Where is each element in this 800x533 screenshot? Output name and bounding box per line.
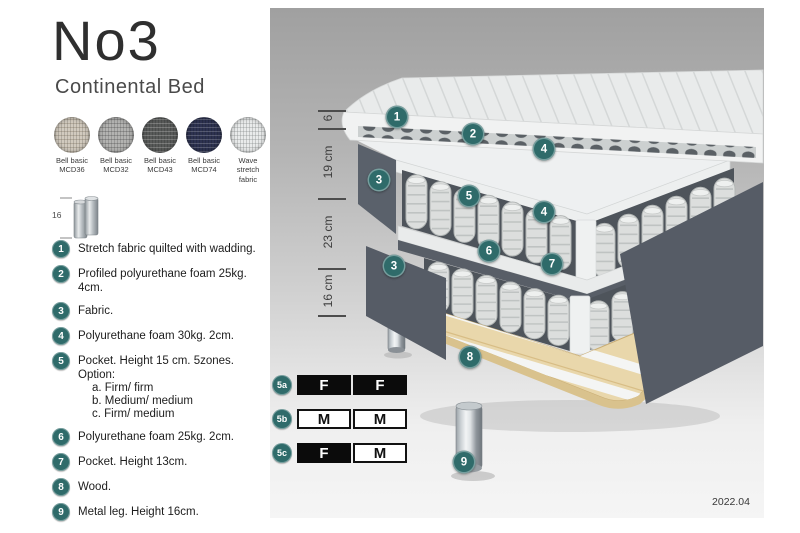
firmness-row: 5aFF: [272, 375, 407, 395]
firmness-cell: M: [297, 409, 351, 429]
spec-item: 2Profiled polyurethane foam 25kg. 4cm.: [52, 265, 274, 295]
spec-item: 4Polyurethane foam 30kg. 2cm.: [52, 327, 274, 345]
spec-number-badge: 7: [52, 453, 70, 471]
spec-item: 9Metal leg. Height 16cm.: [52, 503, 274, 521]
page-root: No3 Continental Bed Bell basicMCD36Bell …: [0, 0, 800, 533]
ruler-label: 16 cm: [321, 259, 335, 323]
page-subtitle: Continental Bed: [55, 76, 205, 99]
spec-number-badge: 6: [52, 428, 70, 446]
spec-sub-option: b. Medium/ medium: [92, 395, 274, 408]
firmness-option-badge: 5b: [272, 409, 292, 429]
firmness-bar: MM: [297, 409, 407, 429]
leg-height-label: 16: [52, 210, 61, 220]
diagram-callout: 1: [386, 106, 409, 129]
fabric-swatch-circle: [186, 117, 222, 153]
diagram-callout: 3: [383, 255, 406, 278]
spec-text: Pocket. Height 13cm.: [78, 453, 187, 471]
spec-item: 1Stretch fabric quilted with wadding.: [52, 240, 274, 258]
version-label: 2022.04: [712, 496, 750, 508]
spec-item: 3Fabric.: [52, 302, 274, 320]
spec-number-badge: 4: [52, 327, 70, 345]
leg-height-icon: 16: [52, 192, 122, 244]
spec-number-badge: 5: [52, 352, 70, 370]
firmness-row: 5bMM: [272, 409, 407, 429]
bed-render-panel: 619 cm23 cm16 cm 12345467389 5aFF5bMM5cF…: [270, 8, 764, 518]
spec-text: Wood.: [78, 478, 111, 496]
fabric-swatch: Bell basicMCD36: [52, 117, 92, 184]
spec-item: 6Polyurethane foam 25kg. 2cm.: [52, 428, 274, 446]
fabric-swatch: Wavestretch fabric: [228, 117, 268, 184]
fabric-swatch-circle: [230, 117, 266, 153]
spec-number-badge: 2: [52, 265, 70, 283]
spec-number-badge: 1: [52, 240, 70, 258]
spec-text: Polyurethane foam 25kg. 2cm.: [78, 428, 234, 446]
fabric-swatch: Bell basicMCD74: [184, 117, 224, 184]
fabric-swatch-circle: [98, 117, 134, 153]
firmness-option-badge: 5c: [272, 443, 292, 463]
firmness-row: 5cFM: [272, 443, 407, 463]
spec-list: 1Stretch fabric quilted with wadding.2Pr…: [52, 240, 274, 528]
spec-item: 5Pocket. Height 15 cm. 5zones. Option:a.…: [52, 352, 274, 421]
spec-text: Profiled polyurethane foam 25kg. 4cm.: [78, 265, 274, 295]
diagram-callout: 4: [533, 201, 556, 224]
spec-text: Fabric.: [78, 302, 113, 320]
fabric-swatch-circle: [142, 117, 178, 153]
spec-number-badge: 8: [52, 478, 70, 496]
fabric-swatch-label: Bell basicMCD43: [144, 156, 176, 175]
spec-sub-option: c. Firm/ medium: [92, 408, 274, 421]
firmness-cell: M: [353, 409, 407, 429]
page-title: No3: [52, 12, 161, 71]
spec-item: 7Pocket. Height 13cm.: [52, 453, 274, 471]
fabric-swatch-circle: [54, 117, 90, 153]
firmness-table: 5aFF5bMM5cFM: [272, 375, 407, 477]
firmness-cell: F: [297, 443, 351, 463]
spec-item: 8Wood.: [52, 478, 274, 496]
diagram-callout: 3: [368, 169, 391, 192]
ruler-label: 23 cm: [321, 200, 335, 264]
leg-dimension-icon: [52, 192, 122, 244]
fabric-swatch-label: Bell basicMCD36: [56, 156, 88, 175]
spec-number-badge: 9: [52, 503, 70, 521]
spec-text: Stretch fabric quilted with wadding.: [78, 240, 256, 258]
diagram-callout: 6: [478, 240, 501, 263]
spec-number-badge: 3: [52, 302, 70, 320]
ruler-label: 19 cm: [321, 130, 335, 194]
firmness-option-badge: 5a: [272, 375, 292, 395]
firmness-cell: F: [353, 375, 407, 395]
diagram-callout: 7: [541, 253, 564, 276]
diagram-callout: 5: [458, 185, 481, 208]
fabric-swatch-label: Bell basicMCD32: [100, 156, 132, 175]
fabric-swatch: Bell basicMCD43: [140, 117, 180, 184]
spec-text: Metal leg. Height 16cm.: [78, 503, 199, 521]
diagram-callout: 2: [462, 123, 485, 146]
diagram-callout: 8: [459, 346, 482, 369]
fabric-swatch: Bell basicMCD32: [96, 117, 136, 184]
diagram-callout: 9: [453, 451, 476, 474]
fabric-swatches: Bell basicMCD36Bell basicMCD32Bell basic…: [52, 117, 268, 184]
firmness-cell: F: [297, 375, 351, 395]
fabric-swatch-label: Wavestretch fabric: [228, 156, 268, 184]
spec-text: Pocket. Height 15 cm. 5zones. Option:a. …: [78, 352, 274, 421]
firmness-bar: FF: [297, 375, 407, 395]
firmness-cell: M: [353, 443, 407, 463]
spec-text: Polyurethane foam 30kg. 2cm.: [78, 327, 234, 345]
fabric-swatch-label: Bell basicMCD74: [188, 156, 220, 175]
spec-sub-option: a. Firm/ firm: [92, 382, 274, 395]
firmness-bar: FM: [297, 443, 407, 463]
diagram-callout: 4: [533, 138, 556, 161]
